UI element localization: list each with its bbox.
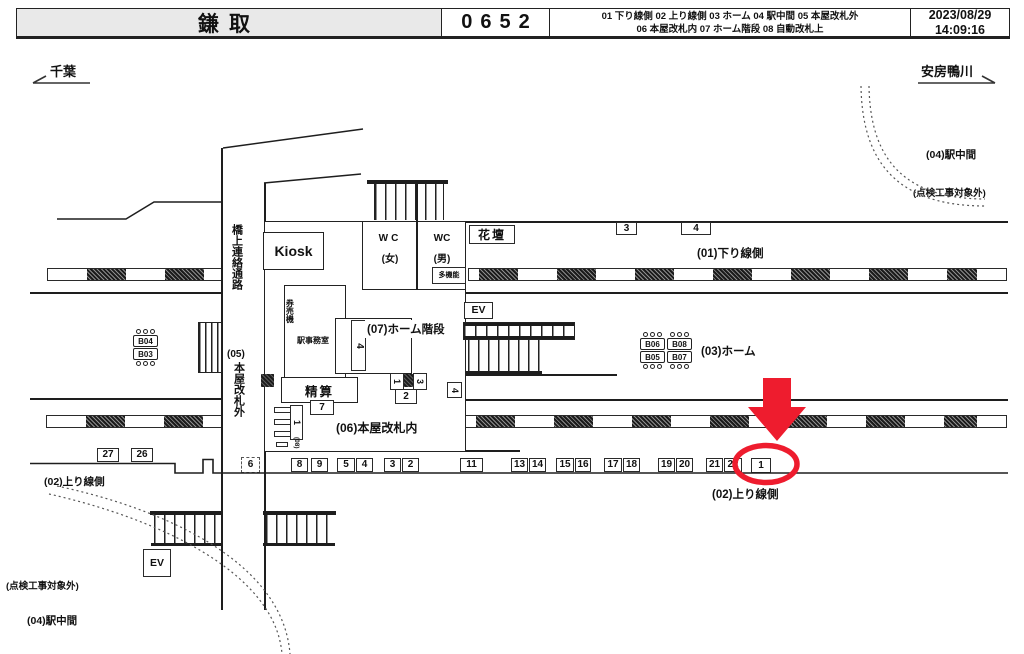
ad-position-13: 13: [511, 458, 528, 472]
ad-position-rot-3: 3: [413, 373, 427, 390]
ad-position-20: 20: [676, 458, 693, 472]
east-platform-stairs: [468, 340, 540, 372]
bench-unit-b04-b03: B04 B03: [133, 329, 158, 366]
ad-position-26: 26: [131, 448, 153, 462]
platform-stairs-label: (07)ホーム階段: [365, 320, 447, 338]
ad-position-3: 3: [384, 458, 401, 472]
south-track-line-left: [30, 398, 223, 400]
platform-elevator: EV: [464, 302, 493, 319]
highlight-arrow: [748, 378, 806, 441]
ticket-machines-label: 券売機: [285, 299, 293, 323]
ad-position-1-highlighted: 1: [751, 458, 771, 473]
bench-dots: [640, 364, 665, 369]
ticket-gate-machine-1: [274, 407, 291, 413]
ad-position-17: 17: [604, 458, 622, 472]
south-east-stairs-bottom-bar: [263, 543, 335, 546]
east-stairs-bottom-bar: [466, 371, 542, 374]
mid-station-label-bl: (04)駅中間: [27, 613, 77, 628]
station-name: 鎌取: [17, 9, 442, 36]
ad-position-6-dashed: 6: [241, 457, 260, 473]
ad-position-18: 18: [623, 458, 640, 472]
multifunction-toilet-room: 多機能: [432, 267, 466, 284]
ad-position-8: 8: [291, 458, 308, 472]
north-west-fence-line: [57, 202, 222, 219]
north-track-line-left: [30, 292, 223, 294]
excluded-label-tr: (点検工事対象外): [913, 185, 986, 199]
rot-4-number: 4: [450, 387, 459, 392]
outside-gate-label: 本屋改札外: [232, 362, 244, 417]
datetime: 2023/08/29 14:09:16: [911, 9, 1009, 36]
header-bar: 鎌取 0652 01 下り線側 02 上り線側 03 ホーム 04 駅中間 05…: [16, 8, 1010, 39]
ad-position-27: 27: [97, 448, 119, 462]
bridge-roof-diagonal-lower: [264, 174, 361, 183]
wc-women-label: WC (女): [366, 228, 414, 270]
bench-dots: [133, 329, 158, 334]
ad-position-7: 7: [310, 400, 334, 415]
bridge-elevator: EV: [143, 549, 171, 577]
ad-position-22: 22: [724, 458, 742, 472]
ad-position-15: 15: [556, 458, 574, 472]
south-track-line-right: [465, 399, 1008, 401]
station-office-label: 駅事務室: [297, 335, 329, 346]
south-east-stairs: [266, 515, 333, 544]
stair-4-number: 4: [354, 343, 364, 349]
up-line-label-right: (02)上り線側: [712, 486, 778, 502]
north-bridge-stairs: [374, 183, 444, 220]
corridor-west-wall: [221, 148, 223, 610]
inside-gate-label: (06)本屋改札内: [336, 419, 417, 436]
category-legend: 01 下り線側 02 上り線側 03 ホーム 04 駅中間 05 本屋改札外 0…: [550, 9, 911, 36]
direction-left-label: 千葉: [50, 61, 76, 80]
south-west-stairs: [154, 515, 220, 544]
mid-station-label-tr: (04)駅中間: [926, 147, 976, 162]
time: 14:09:16: [935, 23, 985, 38]
rot-1-number: 1: [392, 379, 401, 384]
bridge-roof-diagonal-upper: [223, 129, 363, 148]
south-west-stairs-bottom-bar: [151, 543, 221, 546]
ad-position-gate-1: 1: [290, 405, 303, 440]
ad-position-b03: B03: [133, 348, 158, 360]
bench-dots: [667, 364, 692, 369]
south-track-band-right: [465, 415, 1007, 428]
ad-position-4: 4: [356, 458, 373, 472]
wc-divider-wall: [416, 221, 418, 290]
north-stairs-center-rail: [416, 184, 418, 221]
ad-position-19: 19: [658, 458, 675, 472]
platform-label: (03)ホーム: [701, 343, 756, 359]
ticket-gate-machine-4: [276, 442, 288, 447]
station-boundary-curve-tr-inner: [869, 86, 985, 199]
west-platform-stairs: [198, 322, 222, 373]
ad-position-stair-4: 4: [351, 320, 366, 371]
ad-position-14: 14: [529, 458, 546, 472]
escalator: [463, 322, 575, 340]
ad-position-b08: B08: [667, 338, 692, 350]
ad-position-b07: B07: [667, 351, 692, 363]
ad-position-9: 9: [311, 458, 328, 472]
bench-unit-b06-b05: B06 B05: [640, 332, 665, 369]
ad-position-2: 2: [395, 389, 417, 404]
wc-men-title: WC: [420, 228, 464, 249]
ad-position-rot-1: 1: [390, 373, 404, 390]
ad-position-2-row: 2: [402, 458, 419, 472]
ad-position-down-4: 4: [681, 222, 711, 235]
wc-men-label: WC (男): [420, 228, 464, 270]
up-line-label-left: (02)上り線側: [44, 474, 105, 489]
bench-dots: [667, 332, 692, 337]
ad-position-b05: B05: [640, 351, 665, 363]
ad-position-b06: B06: [640, 338, 665, 350]
filled-position-marker-west: [261, 374, 274, 387]
ad-position-down-3: 3: [616, 222, 637, 235]
north-track-band-right: [468, 268, 1007, 281]
kiosk-room: Kiosk: [263, 232, 324, 270]
flowerbed-box: 花壇: [469, 225, 515, 244]
ad-position-rot-4: 4: [447, 382, 462, 398]
ad-position-21: 21: [706, 458, 723, 472]
ad-position-16: 16: [575, 458, 591, 472]
legend-line-1: 01 下り線側 02 上り線側 03 ホーム 04 駅中間 05 本屋改札外: [602, 10, 859, 23]
ad-position-5: 5: [337, 458, 355, 472]
date: 2023/08/29: [929, 8, 992, 23]
stairs-bottom-line: [463, 374, 617, 376]
legend-line-2: 06 本屋改札内 07 ホーム階段 08 自動改札上: [636, 23, 823, 36]
ad-position-b04: B04: [133, 335, 158, 347]
down-line-label: (01)下り線側: [697, 245, 763, 261]
wc-women-sub: (女): [366, 249, 414, 270]
excluded-label-bl: (点検工事対象外): [6, 578, 79, 592]
ticket-gate-machine-3: [274, 431, 291, 437]
filled-position-marker-stairs: [404, 374, 413, 387]
gate-area-bottom-line: [465, 450, 520, 452]
ticket-gate-machine-2: [274, 419, 291, 425]
south-track-band-left: [46, 415, 223, 428]
direction-right-label: 安房鴨川: [921, 61, 973, 80]
outside-gate-prefix: (05): [227, 349, 245, 360]
bridge-passage-label: 橋上連絡通路: [230, 224, 242, 290]
north-track-band-left: [47, 268, 223, 281]
gate-category-label: (08): [290, 437, 300, 453]
bench-unit-b08-b07: B08 B07: [667, 332, 692, 369]
bench-dots: [133, 361, 158, 366]
station-diagram: 鎌取 0652 01 下り線側 02 上り線側 03 ホーム 04 駅中間 05…: [0, 0, 1024, 654]
station-code: 0652: [442, 9, 550, 36]
wc-women-title: WC: [366, 228, 414, 249]
bench-dots: [640, 332, 665, 337]
gate-1-number: 1: [292, 420, 301, 425]
ad-position-11: 11: [460, 458, 483, 472]
rot-3-number: 3: [415, 379, 424, 384]
